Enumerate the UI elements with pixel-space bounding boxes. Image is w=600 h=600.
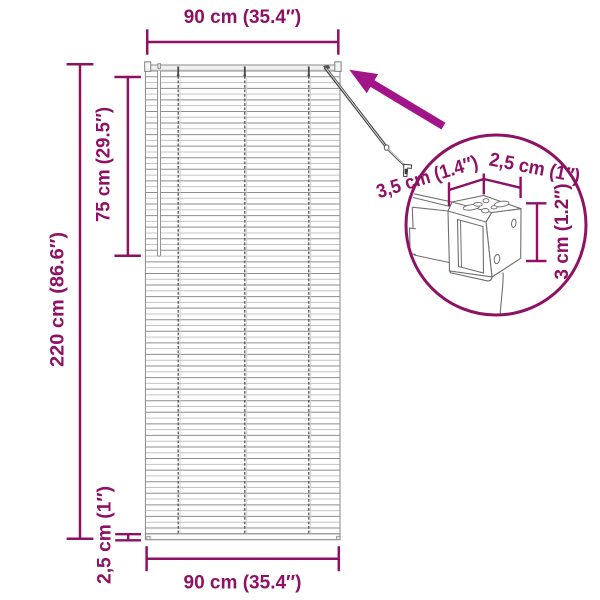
svg-text:220 cm (86.6″): 220 cm (86.6″) — [47, 232, 69, 367]
svg-text:90 cm (35.4″): 90 cm (35.4″) — [184, 6, 302, 28]
svg-text:3 cm (1.2″): 3 cm (1.2″) — [551, 184, 573, 280]
svg-text:2,5 cm (1″): 2,5 cm (1″) — [94, 486, 116, 584]
svg-text:90 cm (35.4″): 90 cm (35.4″) — [184, 572, 302, 594]
svg-text:75 cm (29.5″): 75 cm (29.5″) — [93, 107, 115, 222]
